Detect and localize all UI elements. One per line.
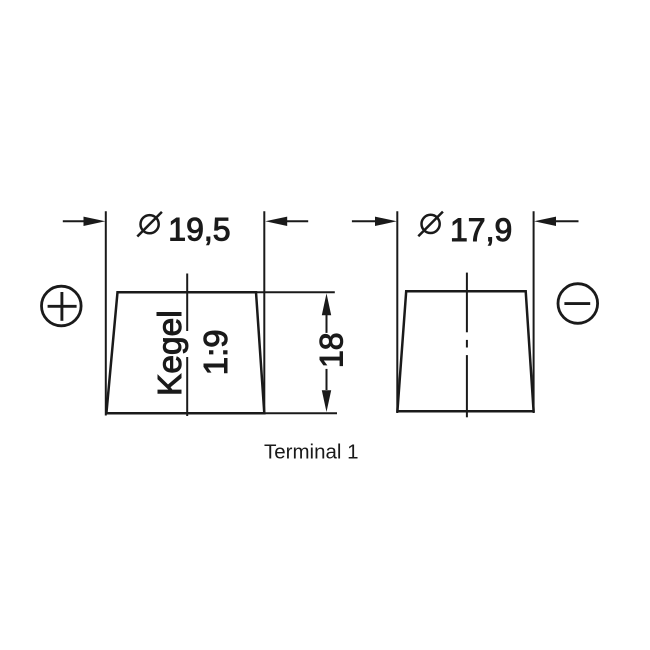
svg-text:1:9: 1:9 bbox=[197, 329, 234, 375]
svg-text:Kegel: Kegel bbox=[152, 310, 189, 396]
svg-text:Terminal 1: Terminal 1 bbox=[264, 440, 359, 463]
svg-text:18: 18 bbox=[313, 332, 349, 368]
svg-text:19,5: 19,5 bbox=[168, 212, 230, 248]
svg-text:17,9: 17,9 bbox=[450, 212, 512, 248]
